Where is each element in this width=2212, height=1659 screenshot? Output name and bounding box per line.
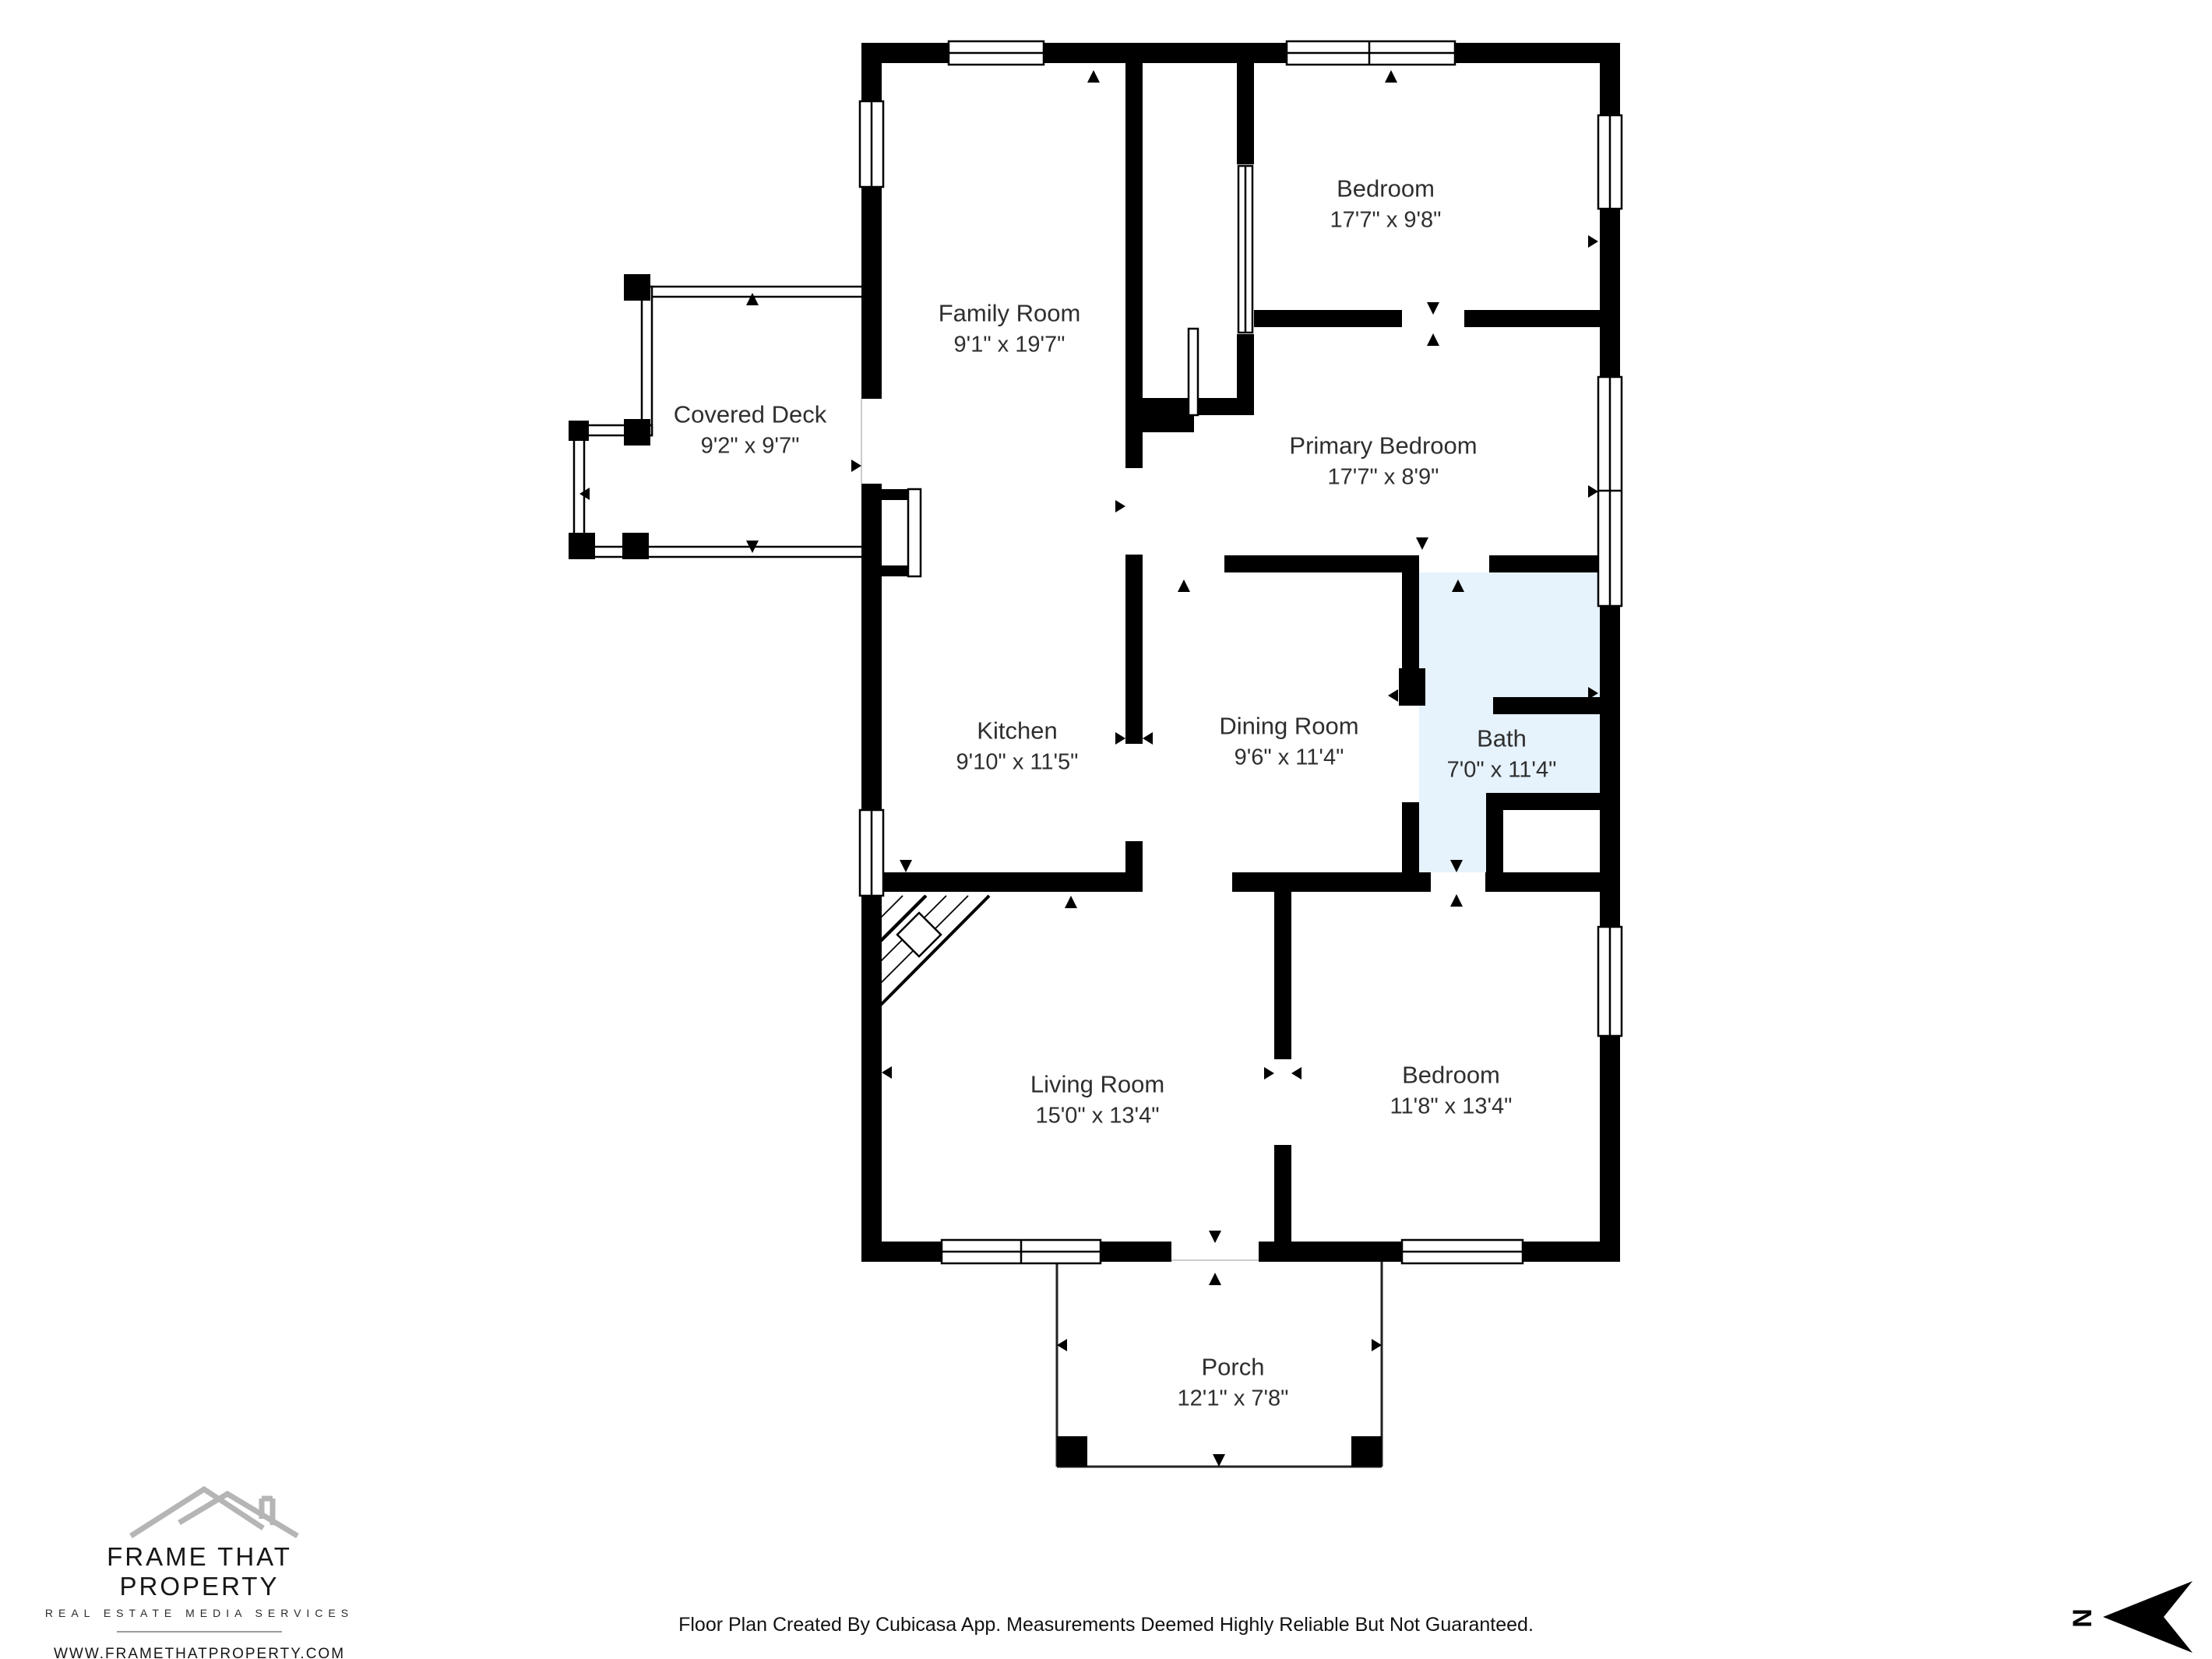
room-name: Living Room — [1030, 1069, 1164, 1101]
floorplan-drawing — [0, 0, 2212, 1659]
floorplan-canvas: Bedroom 17'7" x 9'8" Family Room 9'1" x … — [0, 0, 2212, 1659]
room-dims: 9'2" x 9'7" — [674, 431, 826, 460]
room-dims: 17'7" x 8'9" — [1289, 462, 1477, 491]
room-name: Kitchen — [956, 715, 1079, 747]
roofline-spacer — [44, 1486, 355, 1541]
room-label-kitchen: Kitchen 9'10" x 11'5" — [956, 715, 1079, 777]
room-dims: 12'1" x 7'8" — [1178, 1383, 1289, 1413]
room-label-porch: Porch 12'1" x 7'8" — [1178, 1351, 1289, 1413]
room-dims: 15'0" x 13'4" — [1030, 1101, 1164, 1130]
room-label-dining-room: Dining Room 9'6" x 11'4" — [1219, 710, 1358, 772]
room-label-bedroom-bottom: Bedroom 11'8" x 13'4" — [1390, 1059, 1513, 1121]
room-name: Primary Bedroom — [1289, 430, 1477, 462]
room-label-family-room: Family Room 9'1" x 19'7" — [939, 298, 1081, 359]
room-name: Family Room — [939, 298, 1081, 329]
company-name: FRAME THAT PROPERTY — [44, 1542, 355, 1601]
room-dims: 9'10" x 11'5" — [956, 747, 1079, 777]
room-label-bath: Bath 7'0" x 11'4" — [1447, 723, 1557, 784]
room-name: Porch — [1178, 1351, 1289, 1383]
stairs — [881, 896, 989, 1005]
room-dims: 7'0" x 11'4" — [1447, 755, 1557, 784]
north-label: N — [2068, 1608, 2098, 1628]
room-name: Dining Room — [1219, 710, 1358, 742]
room-dims: 9'1" x 19'7" — [939, 329, 1081, 359]
company-website: WWW.FRAMETHATPROPERTY.COM — [44, 1646, 355, 1659]
room-dims: 11'8" x 13'4" — [1390, 1091, 1513, 1121]
room-name: Bedroom — [1390, 1059, 1513, 1091]
room-dims: 9'6" x 11'4" — [1219, 742, 1358, 772]
disclaimer-text: Floor Plan Created By Cubicasa App. Meas… — [0, 1614, 2212, 1636]
room-label-living-room: Living Room 15'0" x 13'4" — [1030, 1069, 1164, 1130]
room-dims: 17'7" x 9'8" — [1330, 205, 1442, 234]
room-name: Bedroom — [1330, 173, 1442, 205]
room-name: Bath — [1447, 723, 1557, 755]
room-label-bedroom-top: Bedroom 17'7" x 9'8" — [1330, 173, 1442, 234]
room-name: Covered Deck — [674, 399, 826, 431]
room-label-covered-deck: Covered Deck 9'2" x 9'7" — [674, 399, 826, 460]
room-label-primary-bedroom: Primary Bedroom 17'7" x 8'9" — [1289, 430, 1477, 491]
